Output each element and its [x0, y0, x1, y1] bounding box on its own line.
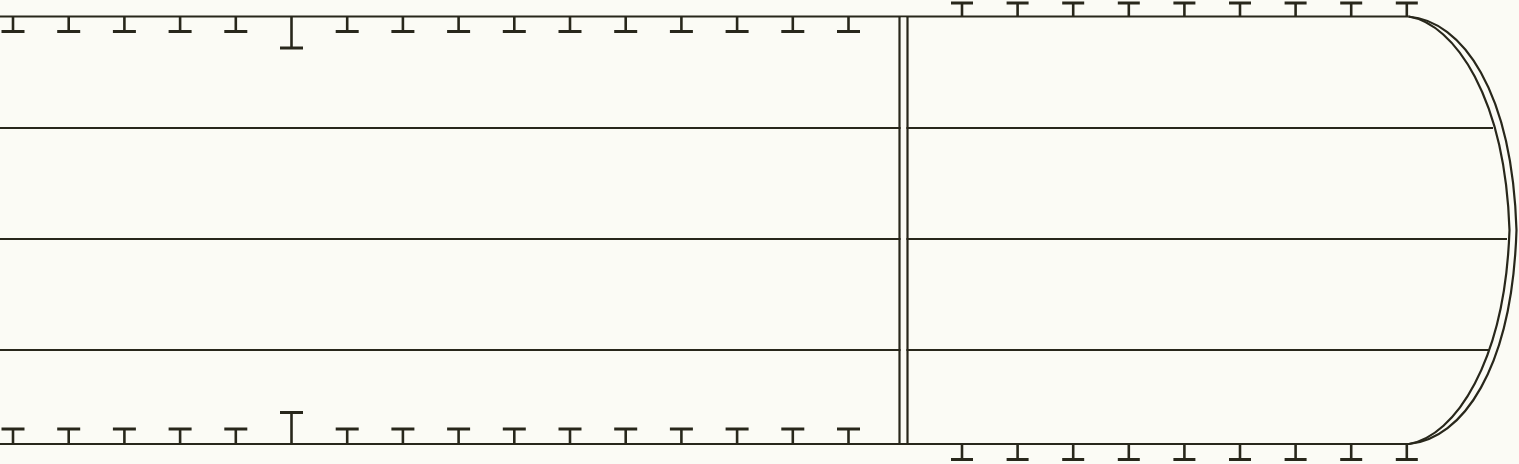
stern-curve-inner	[1409, 17, 1510, 445]
drawing-canvas	[0, 0, 1519, 464]
stern-end-curves	[1409, 17, 1517, 445]
left-bottom-frame-ticks	[2, 413, 861, 445]
double-joint-line	[900, 17, 908, 445]
stern-curve-outer	[1409, 17, 1517, 445]
right-bottom-frame-ticks	[951, 444, 1418, 460]
deck-plan-svg	[0, 0, 1519, 464]
joint-gap	[901, 18, 907, 443]
right-top-frame-ticks	[951, 3, 1418, 17]
left-top-frame-ticks	[2, 17, 861, 49]
deck-lines	[0, 17, 1507, 445]
